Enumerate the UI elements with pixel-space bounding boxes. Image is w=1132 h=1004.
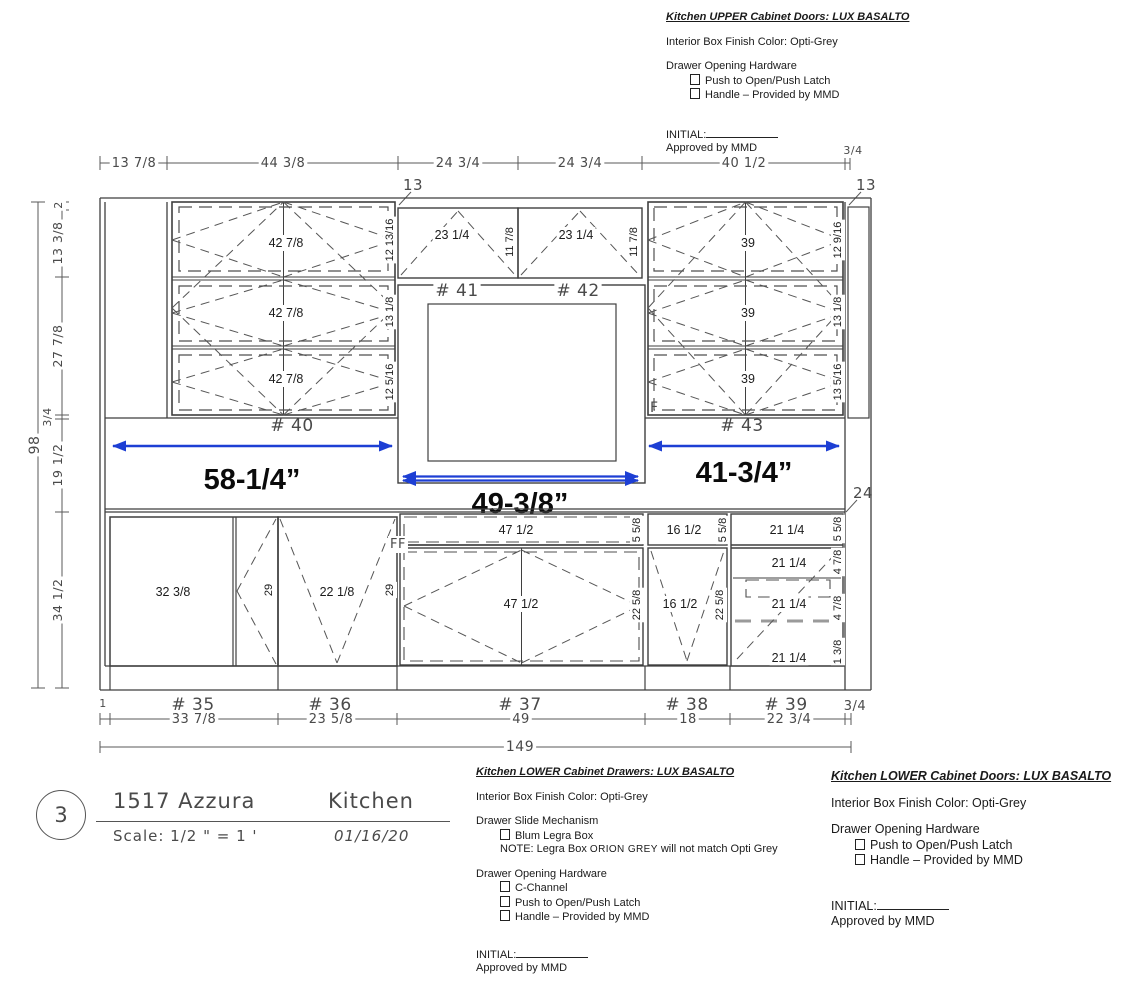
c35-panel-width: 32 3/8 [156, 585, 191, 599]
spec-lower-drawers-hardware-heading: Drawer Opening Hardware [476, 868, 778, 882]
c39-drawer-width-2: 21 1/4 [772, 597, 807, 611]
c40-door-width-1: 42 7/8 [269, 306, 304, 320]
c41-height: 11 7/8 [504, 227, 516, 257]
dim-right-24: 24 [853, 484, 873, 502]
c38-drawer-width: 16 1/2 [667, 523, 702, 537]
c40-door-height-2: 12 5/16 [384, 364, 396, 401]
spec-lower-drawers-title: Kitchen LOWER Cabinet Drawers: LUX BASAL… [476, 766, 778, 780]
spec-lower-doors-finish: Interior Box Finish Color: Opti-Grey [831, 796, 1111, 812]
dim-top-3: 24 3/4 [558, 156, 603, 171]
note-part-3: will not match Opti Grey [661, 843, 778, 855]
spec-upper-doors: Kitchen UPPER Cabinet Doors: LUX BASALTO… [666, 11, 909, 156]
dim-top-1: 44 3/8 [261, 156, 306, 171]
c43-door-height-2: 13 5/16 [832, 364, 844, 401]
spec-lower-doors-option-0: Push to Open/Push Latch [855, 838, 1111, 854]
lower-cabinet-35: 32 3/8 29 [110, 517, 278, 666]
blue-dim-left: 58-1/4” [204, 464, 301, 496]
dim-left-0: 2 [52, 201, 65, 209]
note-part-1: NOTE: Legra Box [500, 843, 587, 855]
c39-bottom-width: 22 3/4 [767, 712, 812, 727]
sheet-number-circle: 3 [36, 790, 86, 840]
initial-label: INITIAL: [831, 899, 877, 913]
dim-depth-13-right: 13 [856, 176, 876, 194]
dim-left-overall: 98 [27, 436, 43, 455]
c43-label: # 43 [720, 416, 763, 436]
spec-lower-doors-title: Kitchen LOWER Cabinet Doors: LUX BASALTO [831, 769, 1111, 785]
c37-bottom-drawer-width: 47 1/2 [504, 597, 539, 611]
c38-door-height: 22 5/8 [714, 590, 726, 621]
c43-door-width-1: 39 [741, 306, 755, 320]
c39-drawer-width-0: 21 1/4 [770, 523, 805, 537]
c40-door-width-2: 42 7/8 [269, 372, 304, 386]
dim-bottom-end-right: 3/4 [844, 699, 866, 714]
option-label: Handle – Provided by MMD [870, 853, 1023, 867]
c43-door-height-0: 12 9/16 [832, 222, 844, 259]
c40-door-width-0: 42 7/8 [269, 236, 304, 250]
spec-lower-doors-initial: INITIAL: [831, 899, 1111, 915]
cabinet-elevation-drawing: 13 7/8 44 3/8 24 3/4 24 3/4 40 1/2 3/4 1… [0, 0, 1132, 772]
c43-door-height-1: 13 1/8 [832, 297, 844, 328]
c40-door-height-0: 12 13/16 [384, 219, 396, 262]
initial-signature-line [516, 947, 588, 958]
spec-lower-drawers-slide-option: Blum Legra Box [500, 829, 778, 844]
c37-top-drawer-height: 5 5/8 [631, 518, 643, 542]
blue-dim-center: 49-3/8” [472, 488, 569, 520]
c38-drawer-height: 5 5/8 [717, 518, 729, 542]
initial-label: INITIAL: [666, 129, 706, 141]
c42-label: # 42 [556, 281, 599, 301]
dim-left-1: 13 3/8 [50, 222, 65, 265]
c35-bottom-width: 33 7/8 [172, 712, 217, 727]
c37-bottom-width: 49 [512, 712, 530, 727]
c35-door-height: 29 [263, 584, 275, 596]
option-label: Push to Open/Push Latch [515, 897, 640, 909]
c36-door-height: 29 [384, 584, 396, 596]
c39-drawer-height-0: 5 5/8 [832, 517, 844, 541]
drawing-scale: Scale: 1/2 " = 1 ' [113, 827, 258, 845]
spec-upper-doors-option-0: Push to Open/Push Latch [690, 74, 909, 89]
spec-upper-doors-option-1: Handle – Provided by MMD [690, 88, 909, 103]
drawing-date: 01/16/20 [334, 827, 409, 845]
checkbox-icon [855, 854, 865, 865]
c39-drawer-height-3: 1 3/8 [832, 640, 844, 664]
dim-overall-width: 149 [506, 739, 534, 755]
checkbox-icon [690, 88, 700, 99]
c42-height: 11 7/8 [628, 227, 640, 257]
spec-lower-drawers: Kitchen LOWER Cabinet Drawers: LUX BASAL… [476, 766, 778, 976]
spec-upper-doors-hardware-heading: Drawer Opening Hardware [666, 60, 909, 74]
lower-cabinet-39: 21 1/4 5 5/8 21 1/4 4 7/8 21 1/4 4 7/8 2… [731, 514, 845, 666]
c42-width: 23 1/4 [559, 228, 594, 242]
range-hood: # 41 # 42 [398, 280, 645, 483]
initial-label: INITIAL: [476, 949, 516, 961]
filler-mark-f: F [650, 400, 659, 416]
c39-drawer-height-1: 4 7/8 [832, 550, 844, 574]
c39-drawer-width-3: 21 1/4 [772, 651, 807, 665]
overall-width-dimension [100, 741, 851, 753]
spec-lower-doors: Kitchen LOWER Cabinet Doors: LUX BASALTO… [831, 769, 1111, 930]
spec-lower-drawers-initial: INITIAL: [476, 947, 778, 963]
checkbox-icon [500, 910, 510, 921]
upper-cabinet-43: 39 39 39 12 9/16 13 1/8 13 5/16 # 43 F [648, 202, 845, 436]
dim-left-2: 27 7/8 [50, 325, 65, 368]
note-part-2: ORION GREY [590, 844, 658, 855]
counter-depth-label: 24 [846, 484, 873, 512]
c37-top-drawer-width: 47 1/2 [499, 523, 534, 537]
c39-drawer-height-2: 4 7/8 [832, 596, 844, 620]
checkbox-icon [500, 829, 510, 840]
lower-cabinet-37: 47 1/2 5 5/8 47 1/2 22 5/8 FF [388, 514, 644, 665]
spec-lower-drawers-option-2: Handle – Provided by MMD [500, 910, 778, 925]
checkbox-icon [500, 896, 510, 907]
dim-left-5: 34 1/2 [50, 579, 65, 622]
spec-lower-drawers-note: NOTE: Legra Box ORION GREY will not matc… [500, 843, 778, 857]
spec-lower-doors-option-1: Handle – Provided by MMD [855, 853, 1111, 869]
option-label: Blum Legra Box [515, 830, 593, 842]
option-label: Push to Open/Push Latch [870, 838, 1012, 852]
spec-upper-doors-finish: Interior Box Finish Color: Opti-Grey [666, 36, 909, 50]
c36-door-width: 22 1/8 [320, 585, 355, 599]
blue-dim-right: 41-3/4” [696, 457, 793, 489]
option-label: Handle – Provided by MMD [705, 89, 840, 101]
spec-lower-drawers-approved: Approved by MMD [476, 962, 778, 976]
c41-width: 23 1/4 [435, 228, 470, 242]
upper-flipup-cabinets: 23 1/4 23 1/4 11 7/8 11 7/8 [398, 208, 642, 278]
c36-bottom-width: 23 5/8 [309, 712, 354, 727]
lower-cabinet-38: 16 1/2 5 5/8 16 1/2 22 5/8 [648, 514, 730, 665]
project-name: 1517 Azzura [113, 789, 255, 813]
dim-left-4: 19 1/2 [50, 444, 65, 487]
checkbox-icon [855, 839, 865, 850]
spec-upper-doors-approved: Approved by MMD [666, 142, 909, 156]
spec-lower-drawers-option-0: C-Channel [500, 881, 778, 896]
dim-depth-13-left: 13 [403, 176, 423, 194]
spec-upper-doors-title: Kitchen UPPER Cabinet Doors: LUX BASALTO [666, 11, 909, 25]
dim-bottom-end-left: 1 [99, 697, 107, 710]
initial-signature-line [877, 899, 949, 910]
c38-door-width: 16 1/2 [663, 597, 698, 611]
option-label: Handle – Provided by MMD [515, 911, 650, 923]
sheet-number: 3 [54, 803, 67, 827]
c40-label: # 40 [270, 416, 313, 436]
dim-top-0: 13 7/8 [112, 156, 157, 171]
spec-lower-doors-approved: Approved by MMD [831, 914, 1111, 930]
checkbox-icon [690, 74, 700, 85]
spec-lower-doors-hardware-heading: Drawer Opening Hardware [831, 822, 1111, 838]
option-label: C-Channel [515, 882, 568, 894]
room-name: Kitchen [328, 789, 414, 813]
dim-top-2: 24 3/4 [436, 156, 481, 171]
c43-door-width-2: 39 [741, 372, 755, 386]
c38-bottom-width: 18 [679, 712, 697, 727]
c41-label: # 41 [435, 281, 478, 301]
initial-signature-line [706, 127, 778, 138]
title-block-divider [96, 821, 450, 822]
checkbox-icon [500, 881, 510, 892]
c43-door-width-0: 39 [741, 236, 755, 250]
upper-cabinet-40: 42 7/8 42 7/8 42 7/8 12 13/16 13 1/8 12 … [172, 202, 397, 436]
spec-lower-drawers-option-1: Push to Open/Push Latch [500, 896, 778, 911]
base-lines [105, 666, 845, 690]
spec-upper-doors-initial: INITIAL: [666, 127, 909, 143]
option-label: Push to Open/Push Latch [705, 75, 830, 87]
c37-bottom-drawer-height: 22 5/8 [631, 590, 643, 621]
spec-lower-drawers-slide-heading: Drawer Slide Mechanism [476, 815, 778, 829]
c40-door-height-1: 13 1/8 [384, 297, 396, 328]
c39-drawer-width-1: 21 1/4 [772, 556, 807, 570]
spec-lower-drawers-finish: Interior Box Finish Color: Opti-Grey [476, 791, 778, 805]
lower-cabinet-36: 22 1/8 29 [278, 517, 397, 666]
filler-mark-ff: FF [390, 537, 406, 552]
dim-left-3: 3/4 [41, 407, 54, 426]
dim-top-4: 40 1/2 [722, 156, 767, 171]
